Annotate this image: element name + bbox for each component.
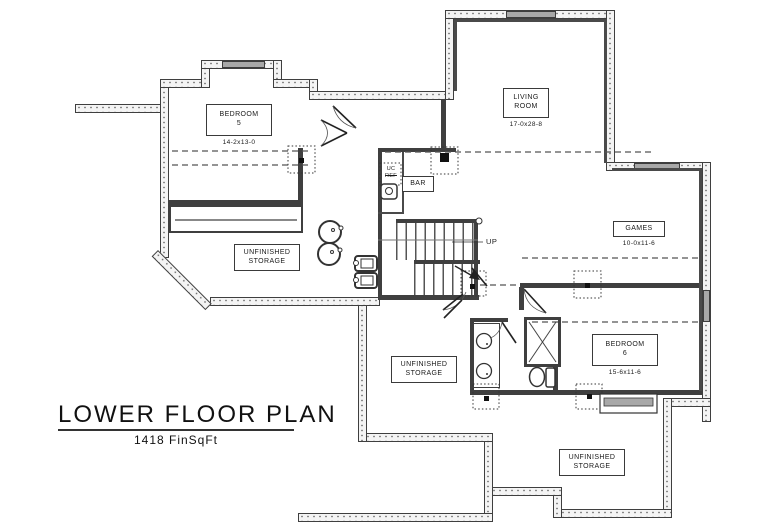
window-bed6-south: [604, 398, 653, 406]
room-label-bedroom6: BEDROOM 6: [592, 334, 658, 366]
furnace-knob: [354, 278, 359, 283]
uc-fridge-door: [386, 188, 393, 195]
water-tank: [318, 243, 340, 265]
plan-title: LOWER FLOOR PLAN: [58, 401, 294, 429]
up-label: UP: [486, 237, 497, 246]
door-leaf: [321, 133, 347, 146]
room-label-bedroom5: BEDROOM 5: [206, 104, 272, 136]
room-dims-living-room: 17-0x28-8: [495, 121, 557, 128]
linework-layer: [0, 0, 775, 530]
room-label-storage-upper: UNFINISHED STORAGE: [234, 244, 300, 271]
tank-valve: [338, 248, 342, 252]
room-dims-bedroom5: 14-2x13-0: [206, 139, 272, 146]
post-dot: [470, 284, 475, 289]
uc-label: UC: [382, 166, 400, 173]
room-dims-bedroom6: 15-6x11-6: [592, 369, 658, 376]
post-dot: [585, 283, 590, 288]
door-arc: [321, 120, 328, 146]
ref-label: REF: [380, 173, 402, 180]
room-label-storage-lower: UNFINISHED STORAGE: [559, 449, 625, 476]
sink-drain: [486, 343, 488, 345]
post-dot: [484, 396, 489, 401]
sink-basin: [477, 364, 492, 379]
room-label-living-room: LIVING ROOM: [503, 88, 549, 118]
tank-valve: [339, 226, 343, 230]
door-leaf: [524, 289, 546, 313]
furnace-knob: [354, 261, 359, 266]
title-underline: [58, 429, 294, 431]
room-label-bar: BAR: [402, 176, 434, 192]
sink-drain: [486, 373, 488, 375]
post-dot: [299, 158, 304, 163]
toilet-tank: [546, 368, 555, 387]
sink-basin: [477, 334, 492, 349]
room-label-storage-middle: UNFINISHED STORAGE: [391, 356, 457, 383]
newel-post: [476, 218, 482, 224]
post-dot: [587, 394, 592, 399]
water-tank: [319, 221, 341, 243]
furnace-inner: [361, 259, 373, 268]
door-leaf: [502, 322, 516, 343]
room-label-games: GAMES: [613, 221, 665, 237]
toilet-bowl: [530, 368, 545, 387]
plan-area: 1418 FinSqFt: [58, 433, 294, 447]
furnace-inner: [361, 276, 373, 285]
floor-plan-sheet: BEDROOM 5 14-2x13-0 LIVING ROOM 17-0x28-…: [0, 0, 775, 530]
post-square: [440, 153, 449, 162]
door-leaf: [333, 106, 356, 128]
room-dims-games: 10-0x11-6: [613, 240, 665, 247]
